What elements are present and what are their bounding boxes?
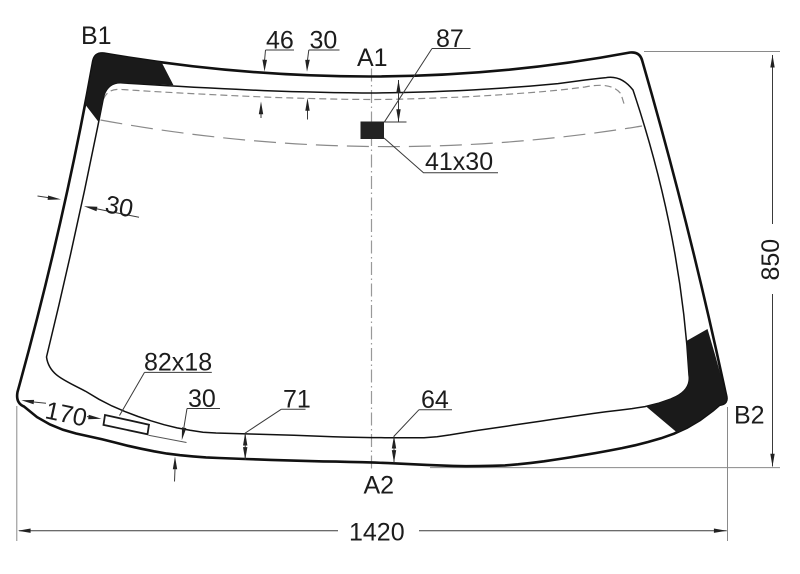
svg-text:41x30: 41x30	[425, 148, 493, 176]
svg-text:82x18: 82x18	[144, 349, 212, 377]
svg-text:64: 64	[421, 386, 449, 414]
svg-text:30: 30	[103, 190, 136, 223]
svg-text:1420: 1420	[349, 519, 405, 547]
svg-text:30: 30	[188, 385, 216, 413]
svg-text:30: 30	[310, 27, 338, 55]
svg-text:A2: A2	[364, 472, 395, 500]
svg-text:87: 87	[436, 25, 464, 53]
svg-text:71: 71	[283, 386, 311, 414]
svg-text:46: 46	[266, 27, 294, 55]
svg-text:170: 170	[43, 396, 90, 432]
svg-text:B1: B1	[81, 22, 112, 50]
svg-text:A1: A1	[357, 44, 388, 72]
svg-text:B2: B2	[734, 402, 765, 430]
svg-text:850: 850	[757, 239, 785, 281]
